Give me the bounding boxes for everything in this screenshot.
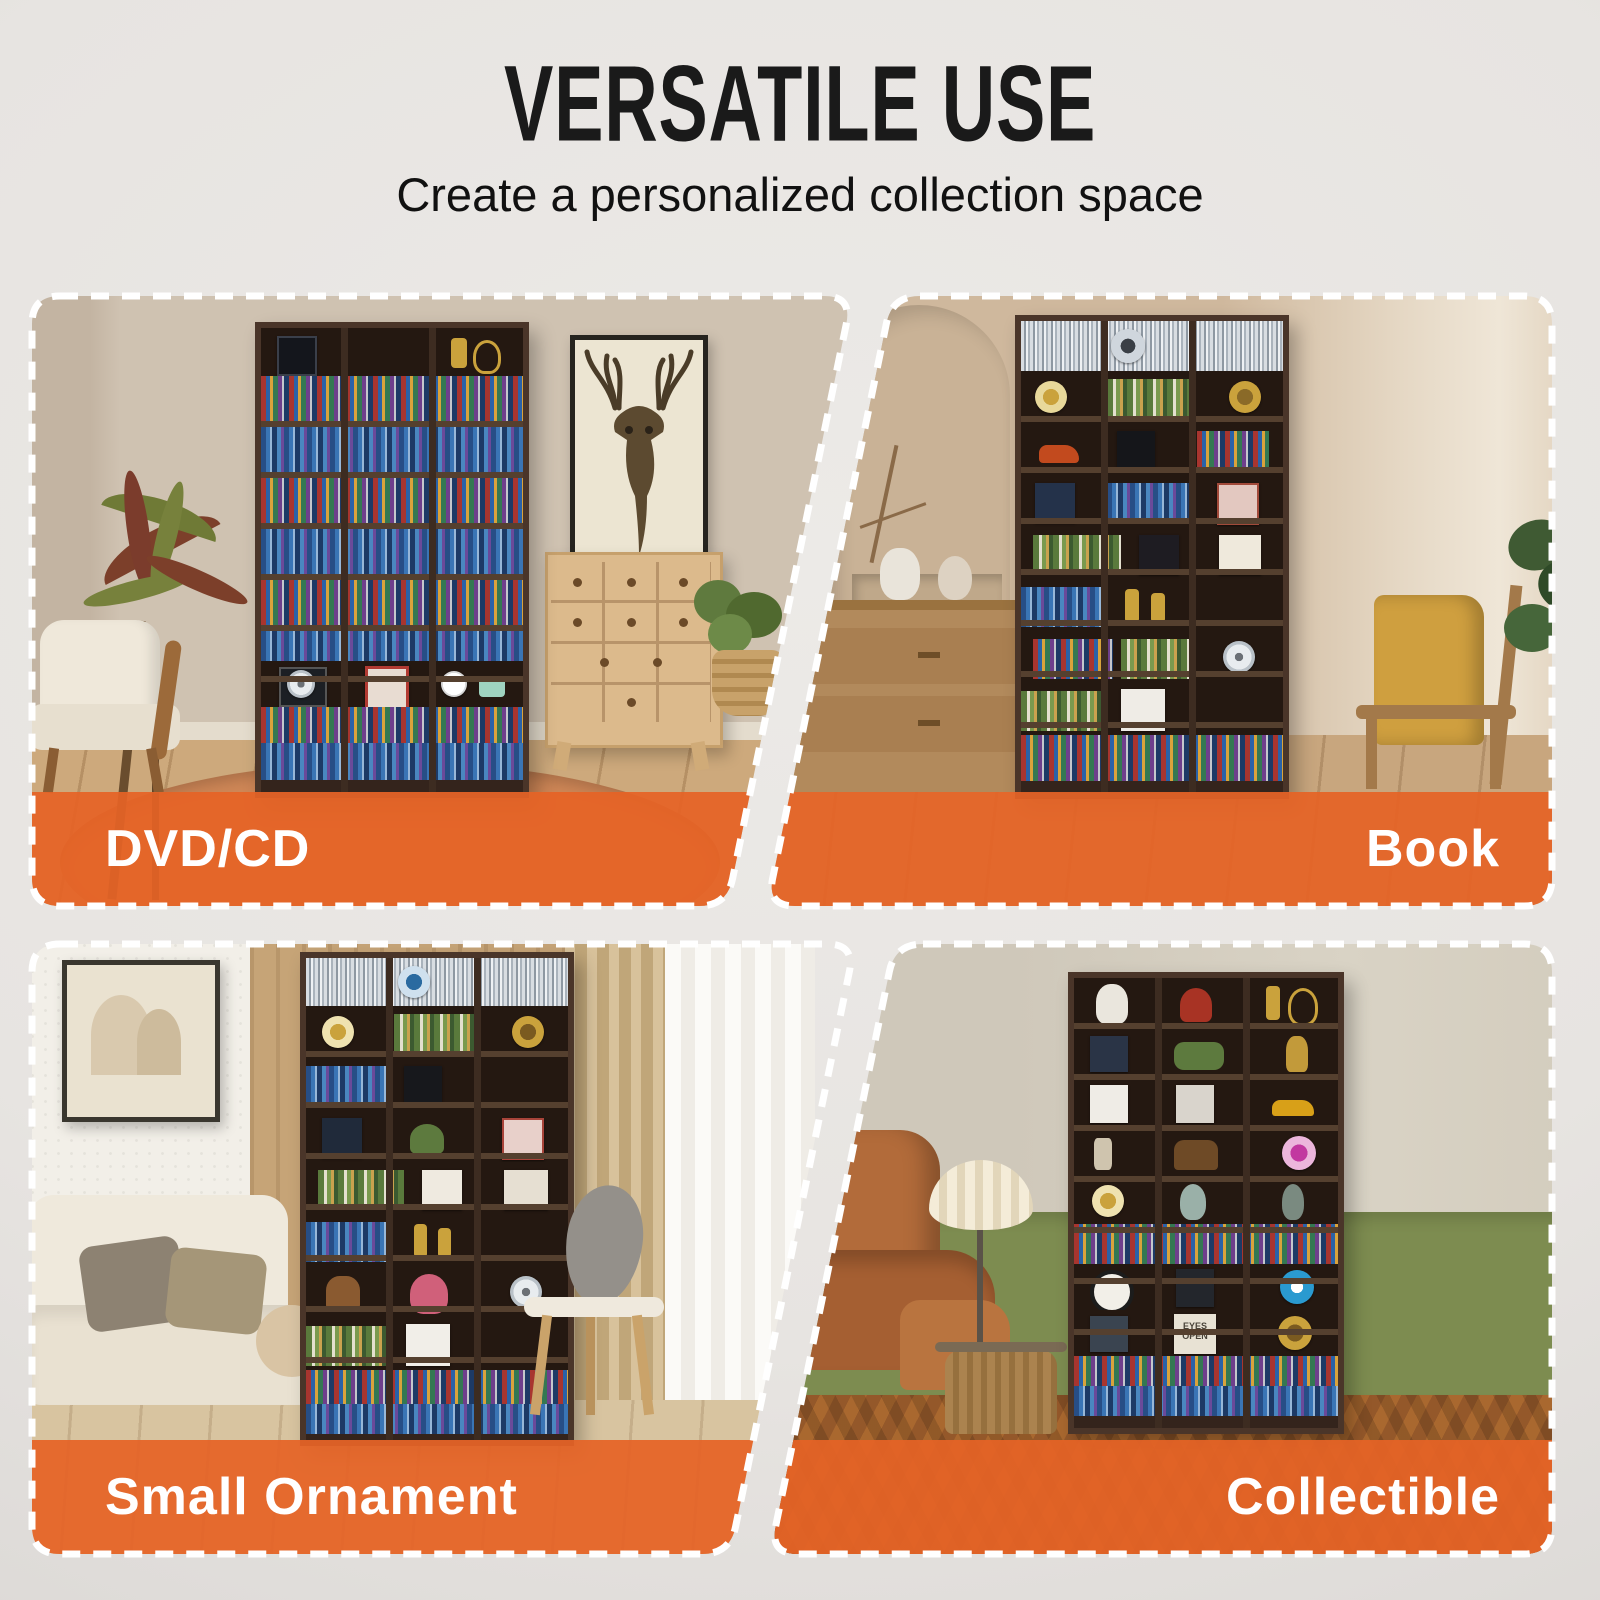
music-note-decor: [1266, 986, 1280, 1020]
sculpture-vase: [938, 556, 972, 600]
deer-figurine: [326, 1276, 360, 1312]
round-back-chair: [520, 1185, 670, 1435]
treasure-chest-decor: [1174, 1140, 1218, 1170]
caption-label-small-ornament: Small Ornament: [105, 1440, 518, 1554]
basket-plant: [690, 580, 810, 740]
cd-art: [277, 336, 317, 376]
pillow: [164, 1246, 268, 1336]
vase-decor: [1282, 1184, 1304, 1220]
music-note-trophy: [438, 1228, 451, 1258]
teddy-bear-figurine: [410, 1274, 448, 1314]
sculpture-head: [880, 548, 920, 600]
eyes-open-album: EYES OPEN: [1174, 1314, 1216, 1354]
caption-label-book: Book: [1366, 792, 1500, 906]
mini-radio-decor: [479, 677, 505, 697]
toy-car-decor: [1272, 1100, 1314, 1116]
vase-decor: [1180, 1184, 1206, 1220]
music-note-trophy: [1151, 593, 1165, 623]
media-shelf-dvd: [255, 322, 529, 798]
lantern-decor: [1288, 988, 1318, 1026]
red-album: [365, 666, 409, 710]
abstract-wall-art: [62, 960, 220, 1122]
media-shelf-book: [1015, 315, 1289, 799]
music-note-trophy: [414, 1224, 427, 1258]
mini-plants-decor: [1174, 1042, 1224, 1070]
alarm-clock-decor: [1090, 1270, 1134, 1314]
houseplant: [1498, 520, 1600, 740]
sheer-curtain: [665, 900, 815, 1420]
deer-art-print: [570, 335, 708, 589]
bust-figurine: [1096, 984, 1128, 1024]
music-note-trophy: [1125, 589, 1139, 623]
deer-sketch-icon: [575, 340, 703, 584]
cream-sofa: [28, 1195, 328, 1440]
media-shelf-collectible: EYES OPEN: [1068, 972, 1344, 1434]
toy-car-decor: [1039, 445, 1079, 463]
eyes-open-album-text: EYES OPEN: [1182, 1321, 1208, 1341]
rattan-side-table: [945, 1350, 1065, 1440]
red-coral-decor: [1180, 988, 1212, 1022]
header: VERSATILE USE Create a personalized coll…: [0, 52, 1600, 222]
hourglass-decor: [1094, 1138, 1112, 1170]
caption-label-collectible: Collectible: [1226, 1440, 1500, 1554]
lantern-decor: [473, 340, 501, 374]
caption-label-dvd-cd: DVD/CD: [105, 792, 310, 906]
gold-statue-decor: [1286, 1036, 1308, 1072]
page-subtitle: Create a personalized collection space: [0, 167, 1600, 222]
music-note-decor: [451, 338, 467, 368]
mini-plant-decor: [410, 1124, 444, 1154]
versatile-use-infographic: VERSATILE USE Create a personalized coll…: [0, 0, 1600, 1600]
page-title: VERSATILE USE: [504, 48, 1096, 161]
armchair: [30, 620, 195, 795]
